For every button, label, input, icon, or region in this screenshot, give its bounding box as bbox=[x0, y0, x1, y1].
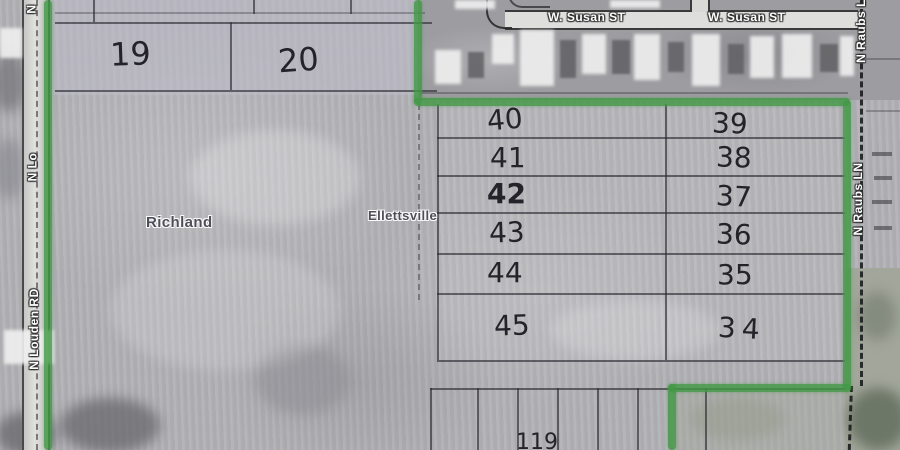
parcel-line bbox=[55, 90, 437, 92]
bottom-block-line bbox=[430, 388, 432, 450]
house-footprint bbox=[750, 36, 774, 78]
bottom-block-line bbox=[597, 388, 599, 450]
parcel-grid-bottom-line bbox=[437, 360, 845, 362]
parcel-line bbox=[93, 0, 95, 22]
light-field-patch bbox=[190, 130, 360, 225]
house-footprint bbox=[782, 34, 812, 78]
house-footprint bbox=[560, 40, 576, 78]
parcel-grid-row-line bbox=[437, 212, 845, 214]
house-footprint bbox=[435, 50, 461, 84]
parcel-grid-left-edge bbox=[437, 104, 439, 360]
parcel-number-partial: 119 bbox=[516, 432, 558, 450]
parcel-grid-row-line bbox=[437, 137, 845, 139]
parcel-line bbox=[253, 0, 255, 14]
parcel-number-36: 36 bbox=[716, 220, 753, 249]
house-footprint bbox=[728, 44, 744, 74]
house-footprint bbox=[610, 0, 660, 8]
road-stub-north bbox=[690, 0, 710, 12]
tree-patch bbox=[0, 138, 24, 200]
parcel-number-40: 40 bbox=[486, 105, 524, 136]
road-label-n-raubs-ln: N Raubs LN bbox=[851, 157, 865, 241]
driveway-mark bbox=[874, 226, 892, 230]
parcel-line bbox=[420, 92, 848, 94]
parcel-grid-row-line bbox=[437, 253, 845, 255]
parcel-number-39: 39 bbox=[712, 109, 749, 138]
bottom-block-line bbox=[705, 388, 707, 450]
road-label-n-louden-fragment: N Lo bbox=[25, 153, 39, 182]
house-footprint bbox=[520, 30, 554, 86]
road-label-n-louden-rd: N Louden RD bbox=[27, 284, 41, 374]
parcel-number-43: 43 bbox=[489, 218, 526, 247]
parcel-number-42: 42 bbox=[487, 180, 526, 208]
house-footprint bbox=[455, 0, 495, 9]
parcel-number-38: 38 bbox=[716, 143, 753, 172]
driveway-mark bbox=[866, 110, 900, 112]
parcel-line bbox=[55, 12, 425, 14]
aerial-parcel-map: 19 20 40 39 41 38 42 37 43 36 44 35 45 3… bbox=[0, 0, 900, 450]
house-footprint bbox=[692, 34, 720, 86]
bottom-block-line bbox=[477, 388, 479, 450]
parcel-line bbox=[350, 0, 352, 14]
green-boundary-east bbox=[843, 100, 851, 390]
house-footprint bbox=[492, 34, 514, 64]
road-label-w-susan-st-2: W. Susan ST bbox=[708, 10, 786, 24]
township-boundary-dashed bbox=[418, 104, 420, 300]
green-boundary-north-vertical bbox=[414, 0, 422, 104]
tree-patch bbox=[60, 398, 160, 450]
driveway-mark bbox=[872, 200, 892, 204]
house-footprint bbox=[582, 34, 606, 74]
parcel-line bbox=[55, 22, 432, 24]
field-zone-northwest bbox=[46, 0, 418, 95]
parcel-number-45: 45 bbox=[494, 311, 531, 340]
tree-patch bbox=[848, 388, 900, 450]
house-footprint bbox=[0, 28, 22, 58]
green-boundary-west bbox=[44, 0, 52, 450]
road-label-n-raubs-fragment: N Raubs L bbox=[854, 0, 868, 66]
house-footprint bbox=[468, 52, 484, 78]
road-label-w-susan-st-1: W. Susan ST bbox=[548, 10, 626, 24]
driveway-mark bbox=[872, 152, 892, 156]
green-boundary-south-horizontal bbox=[668, 384, 851, 392]
parcel-number-37: 37 bbox=[715, 182, 752, 212]
parcel-line bbox=[230, 22, 232, 90]
parcel-grid-row-line bbox=[437, 293, 845, 295]
house-footprint bbox=[634, 34, 660, 80]
road-label-n-louden-initial: N bbox=[25, 4, 39, 13]
driveway-mark bbox=[874, 176, 892, 180]
house-footprint bbox=[840, 36, 854, 76]
green-boundary-north-horizontal bbox=[414, 98, 850, 106]
parcel-number-19: 19 bbox=[109, 37, 151, 70]
parcel-grid-center-divider bbox=[665, 104, 667, 360]
tree-patch bbox=[858, 292, 896, 340]
house-footprint bbox=[612, 40, 630, 74]
parcel-number-20: 20 bbox=[277, 43, 320, 78]
parcel-number-44: 44 bbox=[487, 259, 523, 287]
house-footprint bbox=[668, 42, 684, 72]
place-label-richland: Richland bbox=[146, 214, 213, 231]
green-boundary-south-vertical bbox=[668, 384, 676, 450]
place-label-ellettsville: Ellettsville bbox=[368, 208, 437, 223]
bottom-block-line bbox=[637, 388, 639, 450]
light-field-patch bbox=[550, 300, 720, 360]
parcel-number-34: 34 bbox=[717, 314, 766, 344]
house-footprint bbox=[820, 44, 838, 72]
light-field-patch bbox=[110, 250, 340, 370]
parcel-number-35: 35 bbox=[717, 261, 753, 289]
driveway-mark bbox=[866, 58, 900, 60]
parcel-number-41: 41 bbox=[490, 144, 526, 172]
